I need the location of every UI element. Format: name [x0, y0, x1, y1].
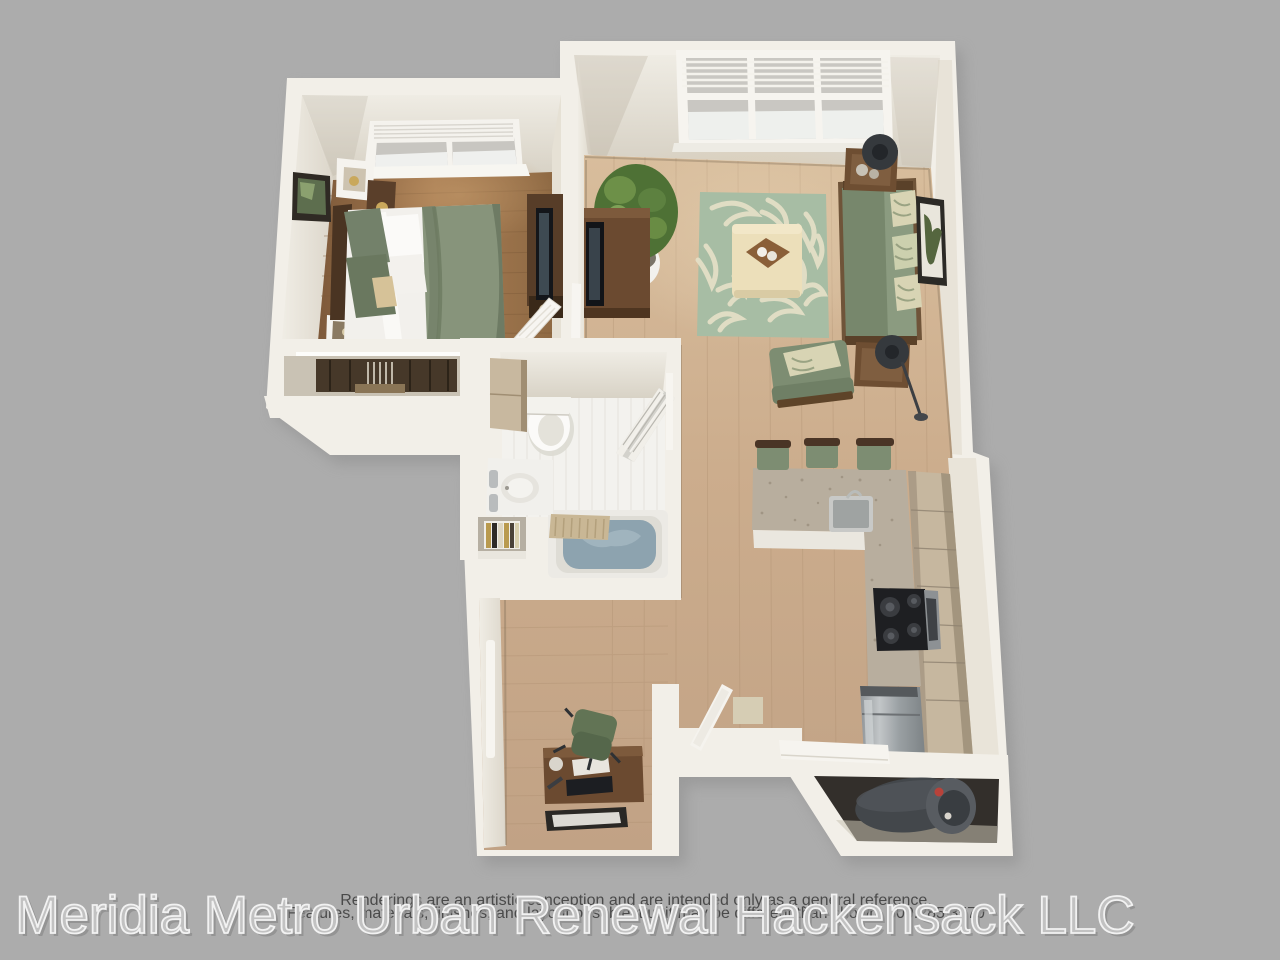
svg-text:Meridia Metro Urban Renewal Ha: Meridia Metro Urban Renewal Hackensack L… — [15, 886, 1134, 945]
